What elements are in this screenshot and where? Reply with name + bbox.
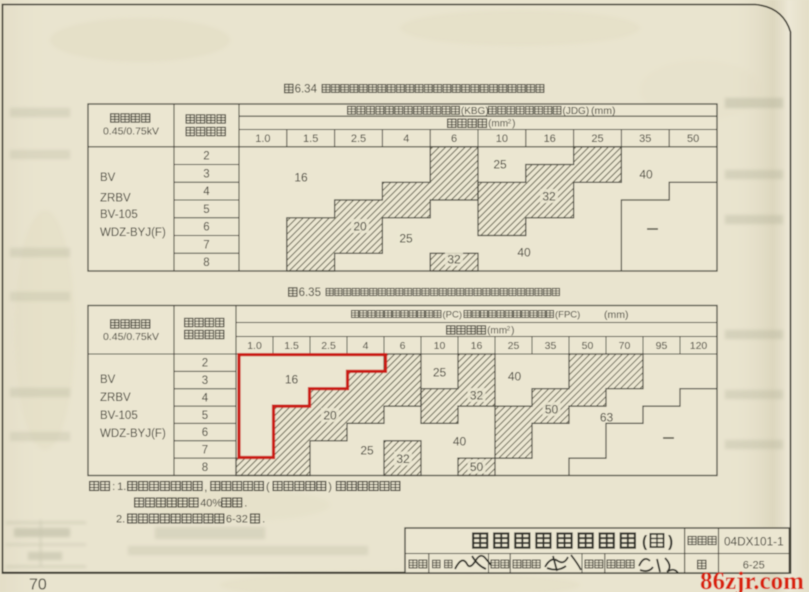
svg-text:4: 4 bbox=[363, 340, 369, 352]
svg-text:): ) bbox=[512, 119, 515, 130]
svg-text:(mm): (mm) bbox=[604, 309, 629, 321]
svg-text:32: 32 bbox=[542, 189, 556, 203]
svg-text:25: 25 bbox=[360, 443, 374, 457]
svg-text:(mm): (mm) bbox=[591, 105, 616, 117]
svg-text:2: 2 bbox=[508, 119, 512, 126]
svg-text:35: 35 bbox=[639, 133, 651, 145]
svg-text:2: 2 bbox=[507, 326, 511, 333]
svg-text:): ) bbox=[328, 481, 332, 493]
svg-text::: : bbox=[112, 481, 115, 493]
svg-text:ZRBV: ZRBV bbox=[100, 392, 131, 404]
svg-text:6: 6 bbox=[203, 222, 209, 234]
svg-text:3: 3 bbox=[202, 375, 208, 387]
svg-text:2: 2 bbox=[203, 151, 209, 163]
svg-text:(mm: (mm bbox=[487, 326, 507, 337]
svg-text:2.5: 2.5 bbox=[321, 340, 336, 352]
svg-text:32: 32 bbox=[396, 452, 410, 466]
svg-text:16: 16 bbox=[544, 133, 556, 145]
svg-text:BV: BV bbox=[100, 374, 116, 386]
svg-text:40%: 40% bbox=[200, 498, 222, 510]
svg-text:32: 32 bbox=[470, 388, 484, 402]
svg-text:(mm: (mm bbox=[488, 119, 508, 130]
svg-text:50: 50 bbox=[545, 402, 559, 416]
svg-text:8: 8 bbox=[203, 257, 209, 269]
svg-text:2.5: 2.5 bbox=[351, 133, 366, 145]
svg-text:(PC): (PC) bbox=[443, 310, 463, 321]
svg-text:86zjr.com: 86zjr.com bbox=[700, 568, 804, 592]
svg-text:.: . bbox=[262, 514, 265, 526]
svg-text:40: 40 bbox=[517, 245, 531, 259]
svg-text:04DX101-1: 04DX101-1 bbox=[724, 535, 784, 549]
svg-text:BV-105: BV-105 bbox=[100, 410, 138, 422]
svg-text:25: 25 bbox=[433, 365, 447, 379]
svg-text:2.: 2. bbox=[116, 514, 125, 526]
svg-text:5: 5 bbox=[203, 204, 209, 216]
svg-text:,: , bbox=[204, 482, 207, 494]
svg-text:(JDG): (JDG) bbox=[563, 106, 590, 117]
svg-text:4: 4 bbox=[403, 133, 409, 145]
svg-text:.: . bbox=[244, 498, 247, 510]
svg-text:1.5: 1.5 bbox=[284, 340, 299, 352]
svg-text:): ) bbox=[511, 326, 514, 337]
svg-text:WDZ-BYJ(F): WDZ-BYJ(F) bbox=[100, 428, 166, 440]
svg-text:(KBG): (KBG) bbox=[461, 106, 489, 117]
svg-text:1.5: 1.5 bbox=[303, 133, 318, 145]
svg-text:70: 70 bbox=[29, 577, 47, 592]
svg-text:120: 120 bbox=[690, 340, 708, 352]
svg-text:25: 25 bbox=[493, 157, 507, 171]
svg-text:4: 4 bbox=[203, 186, 210, 198]
svg-text:): ) bbox=[668, 534, 673, 551]
svg-text:(: ( bbox=[266, 481, 270, 493]
svg-text:1.: 1. bbox=[117, 481, 126, 493]
svg-text:50: 50 bbox=[582, 340, 594, 352]
svg-text:1.0: 1.0 bbox=[247, 340, 262, 352]
svg-text:40: 40 bbox=[453, 434, 467, 448]
svg-text:0.45/0.75kV: 0.45/0.75kV bbox=[103, 126, 159, 138]
svg-text:6: 6 bbox=[400, 340, 406, 352]
svg-text:20: 20 bbox=[353, 219, 367, 233]
svg-text:7: 7 bbox=[203, 239, 209, 251]
svg-text:6.34: 6.34 bbox=[295, 84, 318, 96]
svg-text:20: 20 bbox=[323, 408, 337, 422]
svg-text:0.45/0.75kV: 0.45/0.75kV bbox=[103, 331, 159, 343]
svg-text:70: 70 bbox=[619, 340, 631, 352]
svg-text:50: 50 bbox=[687, 133, 699, 145]
svg-text:BV-105: BV-105 bbox=[100, 209, 138, 221]
svg-text:40: 40 bbox=[639, 167, 653, 181]
svg-text:WDZ-BYJ(F): WDZ-BYJ(F) bbox=[100, 227, 166, 239]
svg-text:40: 40 bbox=[508, 369, 522, 383]
svg-text:2: 2 bbox=[202, 358, 208, 370]
svg-text:95: 95 bbox=[656, 340, 668, 352]
svg-text:3: 3 bbox=[203, 168, 209, 180]
svg-text:25: 25 bbox=[399, 231, 413, 245]
svg-text:6: 6 bbox=[202, 427, 208, 439]
svg-text:16: 16 bbox=[471, 340, 483, 352]
svg-text:35: 35 bbox=[545, 340, 557, 352]
svg-text:25: 25 bbox=[591, 133, 603, 145]
svg-text:32: 32 bbox=[447, 252, 461, 266]
svg-text:6.35: 6.35 bbox=[299, 287, 321, 299]
svg-text:6-32: 6-32 bbox=[226, 514, 248, 526]
svg-text:16: 16 bbox=[285, 372, 299, 386]
svg-text:16: 16 bbox=[294, 170, 308, 184]
svg-text:(FPC): (FPC) bbox=[555, 310, 580, 321]
svg-text:6: 6 bbox=[451, 133, 457, 145]
svg-text:7: 7 bbox=[202, 445, 208, 457]
svg-text:63: 63 bbox=[600, 410, 614, 424]
svg-text:BV: BV bbox=[100, 172, 116, 184]
svg-text:50: 50 bbox=[470, 460, 484, 474]
svg-text:1.0: 1.0 bbox=[255, 133, 270, 145]
svg-text:25: 25 bbox=[508, 340, 520, 352]
svg-text:5: 5 bbox=[202, 410, 208, 422]
svg-text:4: 4 bbox=[202, 392, 209, 404]
svg-text:8: 8 bbox=[202, 462, 208, 474]
svg-text:10: 10 bbox=[496, 133, 508, 145]
svg-text:ZRBV: ZRBV bbox=[100, 193, 131, 205]
svg-text:(: ( bbox=[642, 534, 648, 551]
svg-text:10: 10 bbox=[434, 340, 446, 352]
